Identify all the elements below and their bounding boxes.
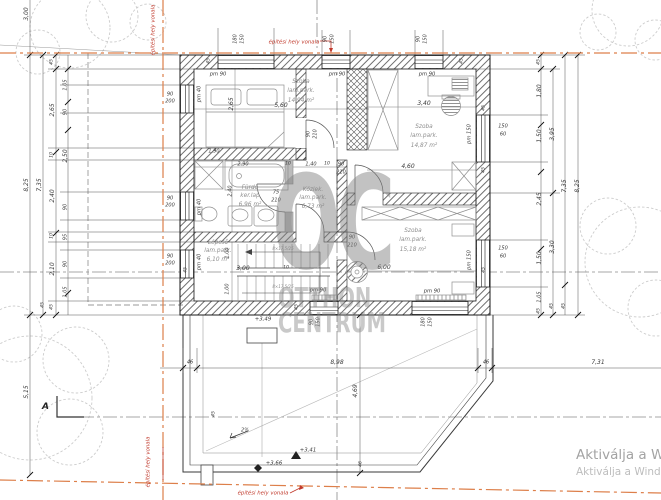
hall-area: 6,73 m² (302, 203, 325, 210)
section-marker-line (57, 396, 84, 417)
bed (206, 85, 284, 147)
toilet (195, 207, 217, 221)
room3-name: Szoba (404, 228, 422, 234)
door-bedroom1 (306, 120, 334, 148)
window-right-1 (476, 115, 490, 162)
wardrobe (368, 70, 398, 150)
outer-walls (180, 55, 490, 315)
radiator-2 (312, 295, 338, 300)
room2-finish: lam.park. (410, 133, 438, 139)
radiator-1 (416, 295, 466, 300)
window-left-2 (180, 192, 194, 220)
bath-finish: ker.lap (240, 193, 260, 199)
window-left-3 (180, 250, 194, 278)
downspout-rect (201, 465, 213, 485)
desk-and-chair (428, 76, 474, 116)
floor-plan-drawing: Szoba lam.park. 14,94 m² Szoba lam.park.… (0, 0, 661, 500)
overhang-dashed-outline (88, 53, 183, 305)
floor-plan-page: { "watermark": {"line1": "OC", "line2": … (0, 0, 661, 500)
door-bedroom2 (355, 165, 383, 193)
terrace-outline (183, 315, 493, 472)
interior-walls (194, 69, 476, 301)
room1-finish: lam.park. (287, 88, 315, 94)
window-bottom-1 (310, 301, 338, 315)
door-hall-room3 (347, 232, 375, 260)
room3-finish: lam.park. (399, 237, 427, 243)
shower (195, 161, 223, 189)
furniture (195, 70, 476, 300)
windows (180, 55, 490, 315)
window-right-2 (476, 240, 490, 287)
section-marker-label: A (42, 402, 49, 412)
truss (362, 207, 476, 220)
room1-area: 14,94 m² (288, 97, 315, 104)
chimney-rect (247, 328, 277, 343)
window-bottom-2 (412, 301, 468, 315)
activation-text-line1: Aktiválja a W (576, 447, 661, 463)
window-top-2 (322, 55, 350, 69)
stairs-name: Lépcső (208, 239, 229, 246)
window-top-3 (415, 55, 443, 69)
room2-area: 14,87 m² (411, 142, 438, 149)
room1-name: Szoba (292, 79, 310, 85)
activation-text-line2: Aktiválja a Wind (576, 466, 661, 478)
room3-area: 15,18 m² (400, 246, 427, 253)
sinks (228, 206, 278, 226)
room2-name: Szoba (415, 124, 433, 130)
closet-x (452, 162, 476, 190)
hall-finish: lam.park. (299, 195, 327, 201)
window-left-1 (180, 85, 194, 113)
level-marker-triangle (291, 451, 301, 459)
shelf-1 (452, 224, 474, 236)
stove (347, 262, 368, 283)
slope-arrow (230, 431, 248, 438)
bath-area: 6,96 m² (239, 201, 262, 208)
stairs-finish: lam.park. (204, 248, 232, 254)
shelf-2 (452, 282, 474, 294)
chimney-shaft (347, 69, 367, 150)
hall-name: Közlek. (303, 187, 324, 193)
bath-name: Fürdő (242, 185, 259, 191)
window-top-1 (218, 55, 274, 69)
stairs-area: 6,10 m² (207, 256, 230, 263)
